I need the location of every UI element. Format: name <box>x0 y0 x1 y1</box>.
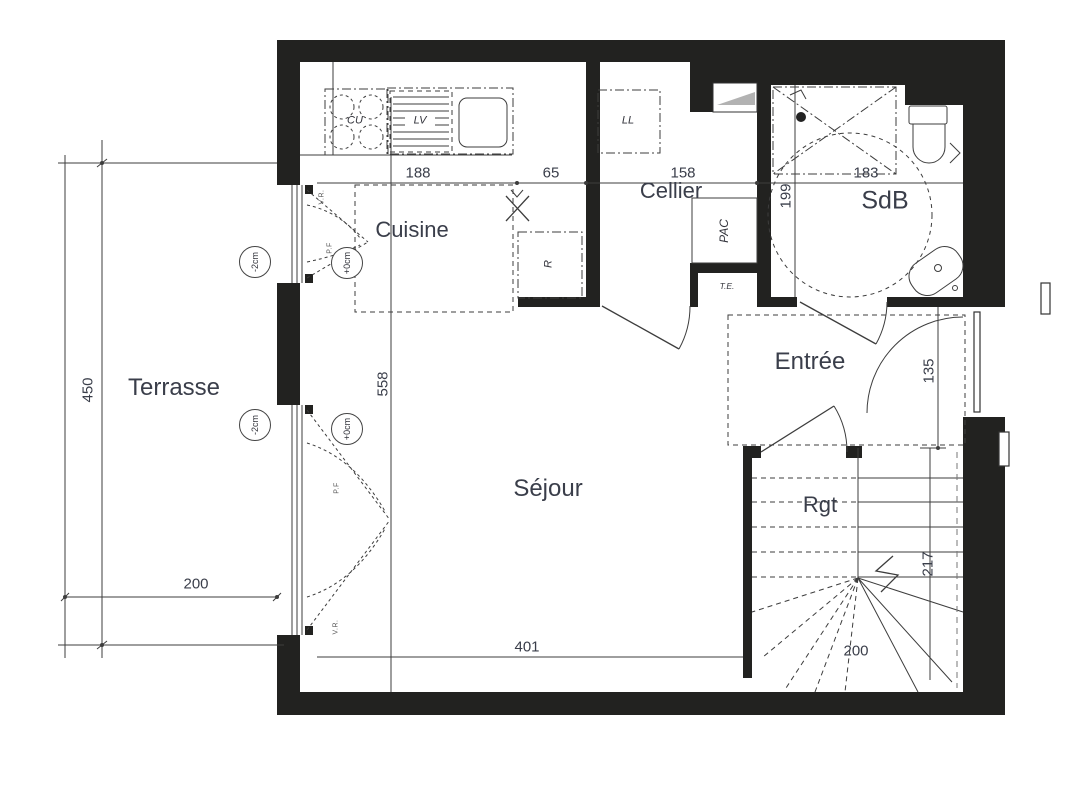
room-label-sdb: SdB <box>861 189 908 214</box>
door-cellier <box>602 306 690 349</box>
dim-label-450: 450 <box>81 377 96 402</box>
vent-niche <box>713 83 757 112</box>
dim-label-158: 158 <box>670 166 695 181</box>
floor-plan: Terrasse Cuisine Cellier SdB Séjour Entr… <box>0 0 1086 800</box>
level-value: -2cm <box>250 415 260 435</box>
roller-shutter-label-1: V.R. <box>319 190 326 205</box>
wall-te-jamb <box>690 273 698 307</box>
wall-top-cellier-deep <box>690 62 713 112</box>
hood-symbol <box>506 190 529 221</box>
wall-rgt-cap-left <box>743 446 761 458</box>
terrace-outline <box>58 155 284 658</box>
wall-rgt-cap-right <box>846 446 862 458</box>
washing-machine-label: LL <box>622 116 634 127</box>
sink-symbol <box>459 98 507 147</box>
turning-circle <box>768 133 932 297</box>
shower-symbol <box>773 87 896 174</box>
dim-label-217: 217 <box>921 551 936 576</box>
dim-label-200-terrasse: 200 <box>183 577 208 592</box>
wall-stairs-left <box>743 458 752 678</box>
room-label-sejour: Séjour <box>513 477 582 501</box>
wall-bottom <box>277 692 1005 715</box>
entrance-door-leaf <box>974 312 980 412</box>
level-value: -2cm <box>250 252 260 272</box>
wall-top <box>277 40 1005 62</box>
wall-sdb-stub-left <box>757 297 797 307</box>
wall-sdb-stub-right <box>887 297 963 307</box>
dim-label-188: 188 <box>405 166 430 181</box>
washbasin-symbol <box>903 240 970 302</box>
level-badge-terrace-1: -2cm <box>239 246 271 278</box>
stair-break-line <box>876 556 898 592</box>
room-label-rgt: Rgt <box>803 494 837 516</box>
dishwasher-label: LV <box>414 116 427 127</box>
wall-right-upper <box>963 62 1005 307</box>
kitchen-zone <box>355 185 513 312</box>
cooktop-label: CU <box>347 116 363 127</box>
wall-wc-niche <box>905 85 965 105</box>
dim-label-135: 135 <box>922 358 937 383</box>
level-badge-interior-1: +0cm <box>331 247 363 279</box>
wall-left-upper <box>277 62 300 185</box>
level-value: +0cm <box>342 418 352 440</box>
dim-label-183: 183 <box>853 166 878 181</box>
wall-left-middle <box>277 283 300 405</box>
room-label-cellier: Cellier <box>640 180 702 202</box>
dim-label-558: 558 <box>376 371 391 396</box>
electrical-panel-label: T.E. <box>720 282 735 291</box>
dim-label-199: 199 <box>779 183 794 208</box>
wall-cellier-sdb <box>757 85 771 307</box>
dim-label-200-stairs: 200 <box>843 644 868 659</box>
level-value: +0cm <box>342 252 352 274</box>
french-door-label-2: P.F <box>334 482 341 494</box>
wall-under-pac <box>690 263 771 273</box>
wall-recess-box <box>999 432 1009 466</box>
dim-label-65: 65 <box>543 166 560 181</box>
room-label-entree: Entrée <box>775 350 846 374</box>
dim-label-401: 401 <box>514 640 539 655</box>
room-label-terrasse: Terrasse <box>128 376 220 400</box>
fridge-label: R <box>544 260 555 268</box>
exterior-pipe-box <box>1041 283 1050 314</box>
level-badge-interior-2: +0cm <box>331 413 363 445</box>
room-label-cuisine: Cuisine <box>375 219 448 241</box>
level-badge-terrace-2: -2cm <box>239 409 271 441</box>
toilet-symbol <box>909 106 960 163</box>
french-door-label-1: P.F <box>327 242 334 254</box>
heat-pump-label: PAC <box>718 219 730 243</box>
wall-top-above-vent <box>713 62 757 83</box>
roller-shutter-label-2: V.R. <box>333 620 340 635</box>
door-sdb <box>800 302 887 344</box>
